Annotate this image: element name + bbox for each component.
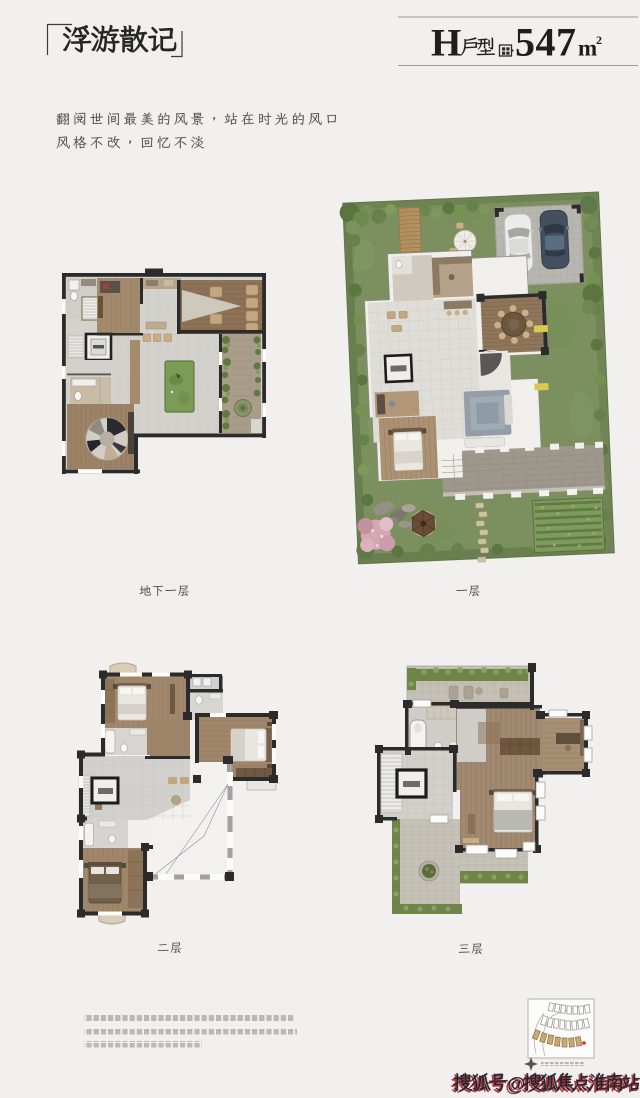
svg-text:2: 2 xyxy=(596,33,602,47)
svg-text:547: 547 xyxy=(515,20,577,65)
svg-text:H: H xyxy=(431,22,461,65)
svg-text:m: m xyxy=(578,36,597,61)
svg-text:@: @ xyxy=(507,1073,525,1094)
